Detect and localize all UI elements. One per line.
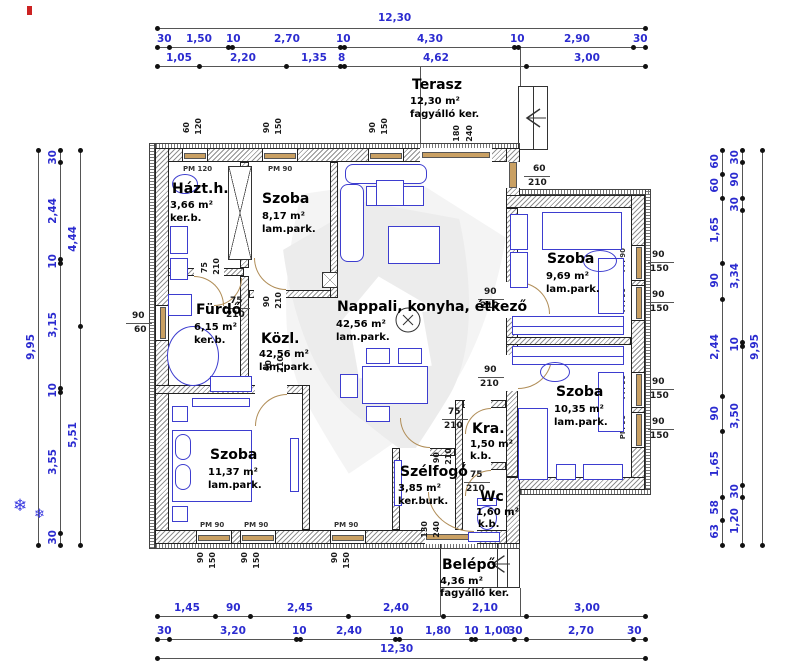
room-floor: lam.park. [208,481,262,491]
room-name: Szoba [556,385,603,399]
dim-label: 30 [633,34,648,45]
room-name: Házt.h. [172,182,229,196]
wall-segment [155,148,169,544]
door-gap [465,462,491,470]
dim-line [722,150,723,545]
dim-line [157,658,645,659]
room-name: Belépő [442,558,496,572]
dim-label: 5,51 [68,422,79,448]
room-area: 42,56 m² [259,350,309,360]
window-size: 150 [650,432,669,441]
dim-label: 60 [710,178,721,193]
label-line [464,482,490,483]
room-area: 9,69 m² [546,272,589,282]
window-size: 60 [134,326,147,335]
dim-label: 10 [292,626,307,637]
tick [740,483,745,488]
dim-line [60,150,61,545]
door-size: 210 [444,422,463,431]
dim-line [762,150,763,545]
dim-label: 1,50 [186,34,212,45]
coffee-table [388,226,440,264]
chair [366,406,390,422]
tick [167,637,172,642]
window [240,530,276,544]
stairs-arrow-icon [520,105,546,131]
room-area: 12,30 m² [410,97,460,107]
label-line [648,262,674,263]
wardrobe [290,438,299,492]
room-floor: lam.park. [336,333,390,343]
dim-label: 30 [157,626,172,637]
wall-segment [302,385,310,530]
tick [740,196,745,201]
window [631,285,645,321]
tick [342,45,347,50]
snowflake-icon: ❄ [34,508,45,521]
door-size: 75 [470,471,483,480]
dim-label: 10 [48,383,59,398]
window-size: 90 [132,312,145,321]
room-name: Kra. [472,422,505,436]
tick [760,543,765,548]
dim-label: 9,95 [750,334,761,360]
door-size: 75 [448,408,461,417]
door-size: 210 [480,380,499,389]
dim-label: 10 [389,626,404,637]
door-size: 180 [453,125,461,142]
nightstand [172,406,188,422]
room-area: 11,37 m² [208,468,258,478]
tick [720,172,725,177]
tick [740,344,745,349]
window [330,530,366,544]
dim-label: 10 [48,254,59,269]
washer [170,226,188,254]
window-code: PM 120 [183,166,212,173]
tick [512,637,517,642]
dim-label: 2,20 [230,53,256,64]
room-area: 1,60 m² [476,508,519,518]
room-area: 3,66 m² [170,201,213,211]
label-line [126,323,152,324]
tick [760,148,765,153]
cabinet [510,252,528,288]
door-arc [254,258,286,290]
tick [740,495,745,500]
dim-label: 90 [710,273,721,288]
dim-label: 10 [464,626,479,637]
tick [58,390,63,395]
room-name: Szoba [262,192,309,206]
room-floor: ker.b. [194,336,225,346]
room-floor: fagyálló ker. [440,589,509,599]
window-size: 90 [652,418,665,427]
washbasin [168,294,192,316]
vanity [210,376,252,392]
dim-label: 12,30 [378,13,411,24]
dim-label: 1,65 [710,451,721,477]
window-size: 90 [197,552,205,563]
insulation [645,189,651,490]
room-floor: fagyálló ker. [410,110,479,120]
dim-label: 1,35 [301,53,327,64]
dim-label: 3,55 [48,449,59,475]
tick [524,614,529,619]
dim-label: 4,44 [68,226,79,252]
dim-label: 3,34 [730,263,741,289]
tick [720,518,725,523]
dim-label: 12,30 [380,644,413,655]
window-code: PM 90 [268,166,292,173]
dim-label: 60 [710,154,721,169]
desk [583,464,623,480]
room-area: 4,36 m² [440,577,483,587]
room-floor: k.b. [478,520,499,530]
dim-label: 30 [730,484,741,499]
door-size: 210 [213,258,221,275]
dim-label: 3,50 [730,403,741,429]
dim-label: 90 [710,406,721,421]
dim-line [157,28,645,29]
dim-label: 10 [730,337,741,352]
room-area: 10,35 m² [554,405,604,415]
tick [58,531,63,536]
tick [643,614,648,619]
room-name: Wc [480,490,504,504]
window [368,148,404,162]
tick [397,637,402,642]
tick [473,637,478,642]
label-line [524,176,550,177]
chair [366,348,390,364]
dim-label: 2,45 [287,603,313,614]
wall-segment [506,337,631,345]
dining-table [362,366,428,404]
dim-label: 2,44 [710,334,721,360]
window [262,148,298,162]
dim-label: 30 [730,197,741,212]
tick [155,656,160,661]
dim-label: 2,10 [472,603,498,614]
tick [155,45,160,50]
tick [524,637,529,642]
snowflake-icon: ❄ [13,498,27,515]
room-name: Szélfogó [400,465,468,479]
chair [340,374,358,398]
window-wc [468,532,500,542]
tick [230,45,235,50]
pillow [175,434,191,460]
tick [58,543,63,548]
tick [720,394,725,399]
window-code: PM 90 [334,522,358,529]
door-size: 240 [466,125,474,142]
door-size: 90 [484,366,497,375]
dim-label: 10 [336,34,351,45]
window-size: 150 [381,118,389,135]
chair [540,362,570,382]
dim-label: 30 [48,150,59,165]
window-size: 150 [275,118,283,135]
window-size: 90 [652,291,665,300]
room-area: 6,15 m² [194,323,237,333]
window-size: 90 [652,378,665,387]
door-size: 90 [484,288,497,297]
window-size: 90 [369,122,377,133]
window-size: 150 [253,552,261,569]
room-floor: ker.b. [170,214,201,224]
tick [346,614,351,619]
door-size: 90 [433,452,441,463]
dim-label: 9,95 [26,334,37,360]
door-gap [400,448,430,456]
window-code: PM 90 [200,522,224,529]
room-name: Fürdő [196,303,241,317]
room-area: 42,56 m² [336,320,386,330]
dim-label: 30 [48,530,59,545]
tick [78,148,83,153]
dim-label: 30 [157,34,172,45]
tick [720,297,725,302]
label-line [442,419,468,420]
window-size: 150 [209,552,217,569]
room-name: Szoba [547,252,594,266]
window-size: 150 [650,305,669,314]
room-name: Közl. [261,332,300,346]
room-name: Szoba [210,448,257,462]
tick [213,614,218,619]
room-floor: ker.burk. [398,497,448,507]
tick [631,45,636,50]
window [631,372,645,408]
tick [284,64,289,69]
window [631,245,645,281]
tick [643,45,648,50]
tick [720,543,725,548]
tick [155,26,160,31]
room-floor: lam.park. [554,418,608,428]
nightstand [172,506,188,522]
label-line [648,302,674,303]
door-size: 75 [201,262,209,273]
door-leaf [509,162,517,188]
tick [720,261,725,266]
dim-label: 4,62 [423,53,449,64]
tick [720,429,725,434]
window-size: 90 [652,251,665,260]
dim-label: 1,45 [174,603,200,614]
closet-rail [512,316,624,335]
window-size: 150 [650,392,669,401]
dim-label: 30 [730,150,741,165]
dim-label: 90 [730,172,741,187]
dim-label: 4,30 [417,34,443,45]
tick [524,64,529,69]
bed [518,408,548,480]
window-size: 90 [263,122,271,133]
door-size: 90 [263,296,271,307]
room-floor: k.b. [470,452,491,462]
dim-label: 2,44 [48,198,59,224]
dim-label: 2,90 [564,34,590,45]
tick [155,64,160,69]
wall-segment [240,276,249,388]
tick [631,637,636,642]
tick [58,160,63,165]
dim-label: 1,80 [425,626,451,637]
room-floor: lam.park. [546,285,600,295]
dim-label: 58 [710,500,721,515]
tick [720,148,725,153]
window [155,305,169,341]
dim-label: 1,65 [710,217,721,243]
dim-label: 90 [226,603,241,614]
label-line [478,377,504,378]
dim-label: 2,70 [568,626,594,637]
dim-line [157,66,645,67]
room-area: 1,50 m² [470,440,513,450]
tick [643,26,648,31]
door-size: 240 [433,521,441,538]
chair [398,348,422,364]
extension-line [520,588,521,616]
cabinet [510,214,528,250]
tick [342,64,347,69]
door-size: 60 [533,165,546,174]
window [182,148,208,162]
dim-label: 3,20 [220,626,246,637]
door-size: 210 [528,179,547,188]
tick [720,196,725,201]
dim-label: 30 [627,626,642,637]
dim-label: 1,05 [166,53,192,64]
tick [197,64,202,69]
room-area: 8,17 m² [262,212,305,222]
window [196,530,232,544]
closet-rail [512,346,624,365]
tick [740,148,745,153]
dim-line [157,616,645,617]
room-area: 3,85 m² [398,484,441,494]
door-size: 130 [421,521,429,538]
window-size: 120 [195,118,203,135]
tick [298,637,303,642]
tick [58,261,63,266]
pillow [175,464,191,490]
tick [643,64,648,69]
dim-label: 3,15 [48,312,59,338]
tick [643,656,648,661]
terrace-door-leaf [422,152,490,158]
cabinet [170,258,188,280]
dim-label: 63 [710,524,721,539]
door-gap [465,400,491,408]
dresser [192,398,250,407]
label-line [648,429,674,430]
window-size: 90 [241,552,249,563]
tick [78,543,83,548]
tick [167,45,172,50]
window-size: 90 [331,552,339,563]
chimney-shaft [228,166,252,260]
tick [36,148,41,153]
stool [556,464,576,480]
room-floor: lam.park. [262,225,316,235]
dim-label: 3,00 [574,603,600,614]
tick [78,324,83,329]
dim-line [38,150,39,545]
tick [720,495,725,500]
dim-label: 1,20 [730,508,741,534]
door-size: 210 [445,448,453,465]
tick [441,614,446,619]
wall-segment [506,195,645,208]
corner-mark [27,6,32,15]
dim-label: 3,00 [574,53,600,64]
tick [36,543,41,548]
tick [740,208,745,213]
window-code: PM 90 [244,522,268,529]
door-gap [255,385,287,394]
door-size: 210 [275,292,283,309]
tick [155,614,160,619]
tick [58,148,63,153]
room-floor: lam.park. [259,363,313,373]
dim-line [80,150,81,545]
dim-label: 10 [510,34,525,45]
room-name: Terasz [412,78,462,92]
sofa [340,184,364,262]
dim-label: 2,40 [336,626,362,637]
window-size: 150 [343,552,351,569]
dim-label: 8 [338,53,345,64]
dim-label: 2,70 [274,34,300,45]
desk [376,180,404,206]
tick [740,160,745,165]
tick [155,637,160,642]
bed [542,212,622,250]
window-size: 60 [183,122,191,133]
window [631,412,645,448]
tick [740,543,745,548]
floor-plan: 12,30 30 1,50 10 2,70 10 4,30 10 2,90 30… [0,0,800,669]
label-line [648,389,674,390]
tick [248,614,253,619]
flue-box [322,272,338,288]
window-size: 150 [650,265,669,274]
dim-label: 2,40 [383,603,409,614]
dim-label: 30 [508,626,523,637]
dim-label: 1,00 [484,626,510,637]
dim-label: 10 [226,34,241,45]
room-name: Nappali, konyha, étkező [337,300,527,314]
tick [643,637,648,642]
